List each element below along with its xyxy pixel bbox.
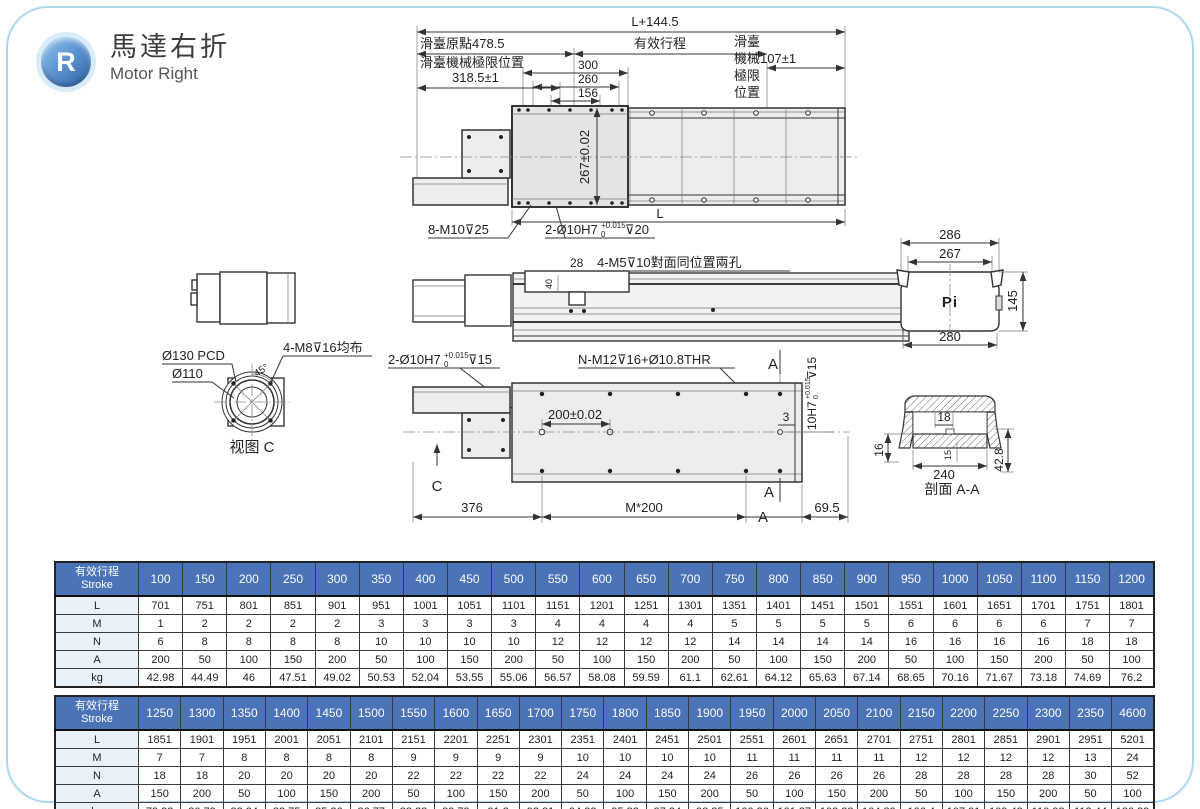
stroke-col-header: 1400 <box>265 696 307 730</box>
value-cell: 94.32 <box>562 803 604 809</box>
value-cell: 18 <box>139 767 181 785</box>
value-cell: 74.69 <box>1065 669 1109 688</box>
value-cell: 150 <box>977 651 1021 669</box>
value-cell: 24 <box>1112 749 1154 767</box>
stroke-col-header: 400 <box>403 562 447 596</box>
row-label: L <box>55 596 139 615</box>
value-cell: 2851 <box>985 730 1027 749</box>
callout-dowel-tail: ⊽20 <box>625 222 649 237</box>
section-base-band <box>913 434 987 448</box>
value-cell: 85.26 <box>308 803 350 809</box>
value-cell: 150 <box>816 785 858 803</box>
value-cell: 2451 <box>646 730 688 749</box>
value-cell: 7 <box>139 749 181 767</box>
stroke-col-header: 150 <box>183 562 227 596</box>
stroke-col-header: 750 <box>712 562 756 596</box>
value-cell: 100 <box>604 785 646 803</box>
value-cell: 100 <box>580 651 624 669</box>
row-label: L <box>55 730 139 749</box>
value-cell: 100 <box>933 651 977 669</box>
value-cell: 64.12 <box>756 669 800 688</box>
value-cell: 200 <box>1027 785 1069 803</box>
value-cell: 2101 <box>350 730 392 749</box>
value-cell: 50 <box>223 785 265 803</box>
value-cell: 2801 <box>942 730 984 749</box>
value-cell: 89.79 <box>435 803 477 809</box>
value-cell: 8 <box>308 749 350 767</box>
value-cell: 1851 <box>139 730 181 749</box>
dim-200: 200±0.02 <box>548 407 602 422</box>
value-cell: 50 <box>392 785 434 803</box>
sensor-rail-nub <box>996 296 1002 310</box>
value-cell: 200 <box>492 651 536 669</box>
value-cell: 10 <box>689 749 731 767</box>
value-cell: 1001 <box>403 596 447 615</box>
value-cell: 109.42 <box>985 803 1027 809</box>
callout-mounting-holes: N-M12⊽16+Ø10.8THR <box>578 352 711 367</box>
value-cell: 62.61 <box>712 669 756 688</box>
value-cell: 2651 <box>816 730 858 749</box>
dim-145: 145 <box>1005 290 1020 312</box>
stroke-header-cell: 有效行程Stroke <box>55 562 139 596</box>
value-cell: 101.87 <box>773 803 815 809</box>
stroke-col-header: 1150 <box>1065 562 1109 596</box>
value-cell: 50 <box>183 651 227 669</box>
callout-pcd: Ø130 PCD <box>162 348 225 363</box>
value-cell: 2501 <box>689 730 731 749</box>
value-cell: 851 <box>271 596 315 615</box>
value-cell: 3 <box>359 615 403 633</box>
callout-side-dowel: 10H7 +0.015 0 ⊽15 <box>805 357 820 430</box>
stroke-col-header: 1100 <box>1021 562 1065 596</box>
value-cell: 8 <box>271 633 315 651</box>
spec-table-2: 有效行程Stroke125013001350140014501500155016… <box>54 695 1155 809</box>
row-label: kg <box>55 803 139 809</box>
value-cell: 26 <box>858 767 900 785</box>
callout-dowel15-base: 2-Ø10H7 <box>388 352 441 367</box>
value-cell: 49.02 <box>315 669 359 688</box>
callout-dowel15-sup: +0.015 <box>444 351 469 360</box>
stroke-col-header: 1500 <box>350 696 392 730</box>
value-cell: 1351 <box>712 596 756 615</box>
callout-tap-holes: 8-M10⊽25 <box>428 222 489 237</box>
value-cell: 1801 <box>1110 596 1154 615</box>
stroke-col-header: 700 <box>668 562 712 596</box>
section-view: 18 16 240 15 42.8 剖面 A-A <box>872 396 1014 497</box>
dim-300: 300 <box>578 58 598 72</box>
stroke-col-header: 1300 <box>181 696 223 730</box>
row-label: M <box>55 749 139 767</box>
value-cell: 2551 <box>731 730 773 749</box>
value-cell: 20 <box>350 767 392 785</box>
value-cell: 91.3 <box>477 803 519 809</box>
stroke-col-header: 2000 <box>773 696 815 730</box>
value-cell: 8 <box>265 749 307 767</box>
value-cell: 20 <box>223 767 265 785</box>
value-cell: 24 <box>562 767 604 785</box>
value-cell: 2051 <box>308 730 350 749</box>
value-cell: 10 <box>646 749 688 767</box>
stroke-col-header: 350 <box>359 562 403 596</box>
motor-body-plan <box>413 387 510 413</box>
dim-16: 16 <box>872 443 886 457</box>
value-cell: 61.1 <box>668 669 712 688</box>
value-cell: 50 <box>712 651 756 669</box>
value-cell: 70.16 <box>933 669 977 688</box>
stroke-col-header: 1350 <box>223 696 265 730</box>
dim-3: 3 <box>783 410 790 424</box>
value-cell: 71.67 <box>977 669 1021 688</box>
value-cell: 52 <box>1112 767 1154 785</box>
dim-156: 156 <box>578 86 598 100</box>
value-cell: 2351 <box>562 730 604 749</box>
stroke-col-header: 2100 <box>858 696 900 730</box>
value-cell: 5 <box>801 615 845 633</box>
value-cell: 2 <box>271 615 315 633</box>
value-cell: 1051 <box>447 596 491 615</box>
stroke-header-cell: 有效行程Stroke <box>55 696 139 730</box>
table-row-N: N181820202020222222222424242426262626282… <box>55 767 1154 785</box>
value-cell: 200 <box>858 785 900 803</box>
value-cell: 82.24 <box>223 803 265 809</box>
stroke-col-header: 800 <box>756 562 800 596</box>
value-cell: 44.49 <box>183 669 227 688</box>
value-cell: 4 <box>580 615 624 633</box>
view-c-caption: 视图 C <box>229 439 274 456</box>
value-cell: 56.57 <box>536 669 580 688</box>
value-cell: 2951 <box>1069 730 1111 749</box>
value-cell: 2751 <box>900 730 942 749</box>
stroke-col-header: 1800 <box>604 696 646 730</box>
dim-18: 18 <box>937 410 951 424</box>
stroke-col-header: 1250 <box>139 696 181 730</box>
dim-right-limit-2: 機械107±1 <box>734 51 796 66</box>
value-cell: 2 <box>227 615 271 633</box>
value-cell: 83.75 <box>265 803 307 809</box>
value-cell: 13 <box>1069 749 1111 767</box>
value-cell: 100 <box>403 651 447 669</box>
stroke-col-header: 950 <box>889 562 933 596</box>
value-cell: 80.73 <box>181 803 223 809</box>
carriage-side <box>525 271 629 292</box>
value-cell: 200 <box>845 651 889 669</box>
value-cell: 1501 <box>845 596 889 615</box>
callout-bore: Ø110 <box>172 366 203 381</box>
value-cell: 95.83 <box>604 803 646 809</box>
value-cell: 1901 <box>181 730 223 749</box>
row-label: A <box>55 785 139 803</box>
value-cell: 67.14 <box>845 669 889 688</box>
stroke-col-header: 1650 <box>477 696 519 730</box>
dim-right-limit-4: 位置 <box>734 85 760 100</box>
value-cell: 8 <box>227 633 271 651</box>
stroke-col-header: 1050 <box>977 562 1021 596</box>
value-cell: 7 <box>1065 615 1109 633</box>
stroke-col-header: 1200 <box>1110 562 1154 596</box>
value-cell: 76.2 <box>1110 669 1154 688</box>
stroke-col-header: 2300 <box>1027 696 1069 730</box>
value-cell: 1201 <box>580 596 624 615</box>
value-cell: 4 <box>536 615 580 633</box>
value-cell: 100 <box>435 785 477 803</box>
value-cell: 2 <box>183 615 227 633</box>
dim-28: 28 <box>570 256 584 270</box>
section-mark-a-top: A <box>768 356 778 373</box>
dim-total-length: L+144.5 <box>631 14 678 29</box>
front-view: L+144.5 滑臺原點478.5 有效行程 滑臺機械極限位置 318.5±1 … <box>400 14 858 239</box>
value-cell: 14 <box>801 633 845 651</box>
value-cell: 150 <box>447 651 491 669</box>
slide-carriage-front <box>512 106 628 207</box>
value-cell: 50 <box>1069 785 1111 803</box>
dim-260: 260 <box>578 72 598 86</box>
row-label: N <box>55 767 139 785</box>
motor-view: 45° Ø130 PCD Ø110 4-M8⊽16均布 视图 C <box>162 272 372 456</box>
section-caption: 剖面 A-A <box>924 481 980 497</box>
table-row-M: M12222333344445555666677 <box>55 615 1154 633</box>
value-cell: 2001 <box>265 730 307 749</box>
value-cell: 50 <box>731 785 773 803</box>
value-cell: 100 <box>942 785 984 803</box>
value-cell: 65.63 <box>801 669 845 688</box>
motor-silhouette <box>220 272 267 324</box>
value-cell: 68.65 <box>889 669 933 688</box>
value-cell: 6 <box>889 615 933 633</box>
value-cell: 3 <box>492 615 536 633</box>
dim-42-8: 42.8 <box>992 448 1006 472</box>
stroke-col-header: 2200 <box>942 696 984 730</box>
value-cell: 8 <box>350 749 392 767</box>
stroke-col-header: 300 <box>315 562 359 596</box>
value-cell: 16 <box>889 633 933 651</box>
value-cell: 10 <box>492 633 536 651</box>
value-cell: 9 <box>392 749 434 767</box>
callout-dowel-base: 2-Ø10H7 <box>545 222 598 237</box>
value-cell: 20 <box>308 767 350 785</box>
value-cell: 6 <box>1021 615 1065 633</box>
value-cell: 28 <box>1027 767 1069 785</box>
value-cell: 1551 <box>889 596 933 615</box>
stroke-col-header: 1700 <box>519 696 561 730</box>
value-cell: 9 <box>435 749 477 767</box>
value-cell: 1451 <box>801 596 845 615</box>
value-cell: 3 <box>403 615 447 633</box>
stroke-col-header: 200 <box>227 562 271 596</box>
value-cell: 1101 <box>492 596 536 615</box>
value-cell: 107.91 <box>942 803 984 809</box>
value-cell: 200 <box>668 651 712 669</box>
value-cell: 11 <box>816 749 858 767</box>
stroke-col-header: 1950 <box>731 696 773 730</box>
stroke-col-header: 1450 <box>308 696 350 730</box>
value-cell: 26 <box>773 767 815 785</box>
value-cell: 22 <box>435 767 477 785</box>
callout-flange-bolts: 4-M8⊽16均布 <box>283 340 363 355</box>
table-row-A: A200501001502005010015020050100150200501… <box>55 651 1154 669</box>
value-cell: 200 <box>181 785 223 803</box>
value-cell: 7 <box>181 749 223 767</box>
value-cell: 28 <box>942 767 984 785</box>
value-cell: 1 <box>139 615 183 633</box>
value-cell: 106.4 <box>900 803 942 809</box>
section-mark-a-bottom: A <box>758 509 768 526</box>
side-view: 28 4-M5⊽10對面同位置兩孔 40 <box>413 255 909 341</box>
stroke-col-header: 1750 <box>562 696 604 730</box>
value-cell: 1601 <box>933 596 977 615</box>
value-cell: 5 <box>845 615 889 633</box>
table-row-N: N688881010101012121212141414141616161618… <box>55 633 1154 651</box>
value-cell: 751 <box>183 596 227 615</box>
value-cell: 200 <box>1021 651 1065 669</box>
value-cell: 1651 <box>977 596 1021 615</box>
value-cell: 10 <box>359 633 403 651</box>
value-cell: 50 <box>562 785 604 803</box>
callout-m5-holes: 4-M5⊽10對面同位置兩孔 <box>597 255 742 270</box>
row-label: M <box>55 615 139 633</box>
value-cell: 42.98 <box>139 669 183 688</box>
value-cell: 801 <box>227 596 271 615</box>
dim-376: 376 <box>461 500 483 515</box>
stroke-col-header: 600 <box>580 562 624 596</box>
stroke-col-header: 1600 <box>435 696 477 730</box>
value-cell: 1751 <box>1065 596 1109 615</box>
value-cell: 150 <box>271 651 315 669</box>
dim-286: 286 <box>939 227 961 242</box>
value-cell: 86.77 <box>350 803 392 809</box>
value-cell: 2601 <box>773 730 815 749</box>
value-cell: 11 <box>731 749 773 767</box>
dim-slide-origin: 滑臺原點478.5 <box>420 36 505 51</box>
value-cell: 8 <box>223 749 265 767</box>
value-cell: 100 <box>1110 651 1154 669</box>
value-cell: 20 <box>265 767 307 785</box>
value-cell: 9 <box>477 749 519 767</box>
technical-drawing: L+144.5 滑臺原點478.5 有效行程 滑臺機械極限位置 318.5±1 … <box>0 0 1200 556</box>
value-cell: 100 <box>773 785 815 803</box>
value-cell: 24 <box>689 767 731 785</box>
value-cell: 9 <box>519 749 561 767</box>
value-cell: 18 <box>1065 633 1109 651</box>
stroke-col-header: 2050 <box>816 696 858 730</box>
value-cell: 55.06 <box>492 669 536 688</box>
value-cell: 150 <box>308 785 350 803</box>
stroke-col-header: 1000 <box>933 562 977 596</box>
value-cell: 112.44 <box>1069 803 1111 809</box>
value-cell: 1951 <box>223 730 265 749</box>
stroke-col-header: 850 <box>801 562 845 596</box>
value-cell: 2701 <box>858 730 900 749</box>
brand-logo: Pi <box>942 294 958 311</box>
value-cell: 18 <box>181 767 223 785</box>
value-cell: 26 <box>731 767 773 785</box>
value-cell: 30 <box>1069 767 1111 785</box>
value-cell: 2 <box>315 615 359 633</box>
value-cell: 5201 <box>1112 730 1154 749</box>
dim-mech-limit-value: 318.5±1 <box>452 70 499 85</box>
value-cell: 12 <box>580 633 624 651</box>
value-cell: 12 <box>624 633 668 651</box>
value-cell: 10 <box>562 749 604 767</box>
dim-40: 40 <box>544 279 554 289</box>
datasheet-page: R 馬達右折 Motor Right <box>0 0 1200 809</box>
value-cell: 50 <box>889 651 933 669</box>
value-cell: 701 <box>139 596 183 615</box>
dim-mech-limit-label: 滑臺機械極限位置 <box>420 55 524 70</box>
value-cell: 50 <box>536 651 580 669</box>
value-cell: 50.53 <box>359 669 403 688</box>
stroke-col-header: 1850 <box>646 696 688 730</box>
value-cell: 28 <box>900 767 942 785</box>
callout-side-dowel-sup: +0.015 <box>805 377 812 399</box>
value-cell: 1401 <box>756 596 800 615</box>
value-cell: 2201 <box>435 730 477 749</box>
value-cell: 2401 <box>604 730 646 749</box>
value-cell: 50 <box>359 651 403 669</box>
value-cell: 1701 <box>1021 596 1065 615</box>
value-cell: 58.08 <box>580 669 624 688</box>
spec-table-1: 有效行程Stroke100150200250300350400450500550… <box>54 561 1155 688</box>
value-cell: 52.04 <box>403 669 447 688</box>
spec-tables: 有效行程Stroke100150200250300350400450500550… <box>54 561 1155 809</box>
value-cell: 24 <box>646 767 688 785</box>
stroke-col-header: 450 <box>447 562 491 596</box>
dim-267-end: 267 <box>939 246 961 261</box>
value-cell: 92.81 <box>519 803 561 809</box>
dim-280: 280 <box>939 329 961 344</box>
value-cell: 4 <box>668 615 712 633</box>
value-cell: 2301 <box>519 730 561 749</box>
value-cell: 14 <box>756 633 800 651</box>
stroke-col-header: 2350 <box>1069 696 1111 730</box>
value-cell: 4 <box>624 615 668 633</box>
value-cell: 97.34 <box>646 803 688 809</box>
value-cell: 103.38 <box>816 803 858 809</box>
value-cell: 6 <box>139 633 183 651</box>
value-cell: 88.28 <box>392 803 434 809</box>
value-cell: 2151 <box>392 730 434 749</box>
stroke-col-header: 1550 <box>392 696 434 730</box>
stroke-col-header: 2250 <box>985 696 1027 730</box>
stroke-col-header: 500 <box>492 562 536 596</box>
value-cell: 901 <box>315 596 359 615</box>
value-cell: 46 <box>227 669 271 688</box>
value-cell: 22 <box>519 767 561 785</box>
value-cell: 18 <box>1110 633 1154 651</box>
plan-view: 2-Ø10H7 +0.015 0 ⊽15 N-M12⊽16+Ø10.8THR A <box>388 350 850 526</box>
value-cell: 5 <box>712 615 756 633</box>
value-cell: 150 <box>646 785 688 803</box>
dim-240: 240 <box>933 467 955 482</box>
value-cell: 16 <box>933 633 977 651</box>
table-row-kg: kg42.9844.494647.5149.0250.5352.0453.555… <box>55 669 1154 688</box>
value-cell: 100 <box>756 651 800 669</box>
value-cell: 14 <box>712 633 756 651</box>
stroke-col-header: 550 <box>536 562 580 596</box>
value-cell: 200 <box>315 651 359 669</box>
value-cell: 6 <box>933 615 977 633</box>
callout-side-dowel-sub: 0 <box>813 395 820 399</box>
value-cell: 10 <box>403 633 447 651</box>
value-cell: 100 <box>265 785 307 803</box>
value-cell: 79.22 <box>139 803 181 809</box>
value-cell: 200 <box>689 785 731 803</box>
value-cell: 3 <box>447 615 491 633</box>
value-cell: 16 <box>1021 633 1065 651</box>
value-cell: 8 <box>183 633 227 651</box>
table-row-L: L185119011951200120512101215122012251230… <box>55 730 1154 749</box>
sensor-dog <box>569 292 585 305</box>
value-cell: 47.51 <box>271 669 315 688</box>
